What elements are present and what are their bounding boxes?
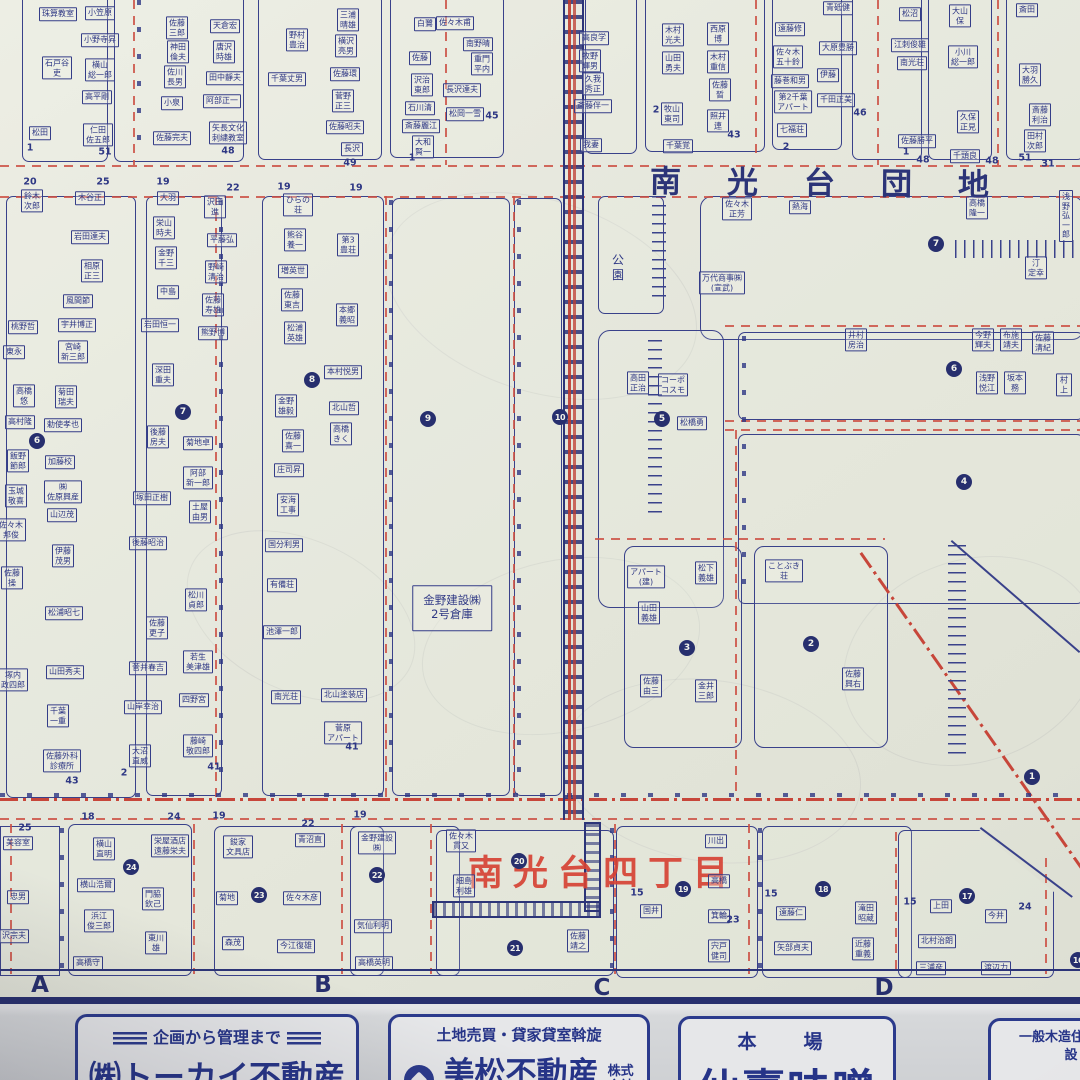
house-label: 西原 博 — [707, 22, 729, 45]
circled-block-number: 2 — [803, 636, 819, 652]
city-block-6 — [738, 332, 1080, 420]
pole-dots — [0, 793, 1080, 797]
house-label: 東永 — [3, 345, 25, 359]
house-label: 南光荘 — [897, 56, 927, 70]
street-line — [513, 196, 515, 798]
house-label: 佐藤 靖之 — [567, 929, 589, 952]
house-label: 有備荘 — [267, 578, 297, 592]
house-label: 松橋勇 — [677, 416, 707, 430]
house-label: 藤崎 敬四郎 — [183, 734, 213, 757]
house-label: 川出 — [705, 834, 727, 848]
house-label: アパート (建) — [627, 565, 665, 588]
city-block-10 — [514, 198, 562, 796]
grid-letter: B — [314, 972, 332, 998]
house-label: 野村 豊治 — [286, 28, 308, 51]
circled-block-number: 18 — [815, 881, 831, 897]
house-label: 忠男 — [7, 890, 29, 904]
lot-number: 31 — [1041, 159, 1054, 170]
house-label: 伊藤 茂男 — [52, 544, 74, 567]
house-label: 木村 重信 — [707, 50, 729, 73]
circled-block-number: 10 — [552, 409, 568, 425]
house-label: 南光荘 — [271, 690, 301, 704]
circled-block-number: 9 — [420, 411, 436, 427]
house-label: 汀 定幸 — [1025, 256, 1047, 279]
house-label: 北村治朗 — [918, 934, 956, 948]
house-label: 斎田 — [1016, 3, 1038, 17]
house-label: 木村 光夫 — [662, 23, 684, 46]
house-label: 若生 美津雄 — [183, 650, 213, 673]
ad-tokai-fudosan: 企画から管理まで ㈱トーカイ不動産 — [75, 1014, 359, 1080]
house-label: 佐藤 東吉 — [281, 288, 303, 311]
house-label: 照井 連 — [707, 109, 729, 132]
house-label: 大羽 — [157, 191, 179, 205]
house-label: 勅使孝也 — [44, 418, 82, 432]
house-label: 佐藤 更子 — [146, 616, 168, 639]
house-label: 佐々木 邦俊 — [0, 518, 26, 541]
house-label: 増英世 — [278, 264, 308, 278]
house-label: 斎藤麗江 — [402, 119, 440, 133]
house-label: 後藤 房夫 — [147, 425, 169, 448]
house-label: 高田 正治 — [627, 371, 649, 394]
circled-block-number: 8 — [304, 372, 320, 388]
house-label: 沢宗夫 — [0, 929, 29, 943]
house-label: 鋑家 文具店 — [223, 835, 253, 858]
house-label: 井村 房治 — [845, 328, 867, 351]
house-label: 北山哲 — [329, 401, 359, 415]
circled-block-number: 19 — [675, 881, 691, 897]
bars-icon — [113, 1032, 147, 1046]
house-label: 今江復雄 — [277, 939, 315, 953]
street-line — [430, 824, 432, 974]
house-label: 遠藤仁 — [776, 906, 806, 920]
house-label: 小笠原 — [85, 6, 115, 20]
house-label: 門脇 欽己 — [142, 887, 164, 910]
house-label: 矢長文化 刺繍教室 — [209, 121, 247, 144]
house-label: 斎藤伴一 — [574, 99, 612, 113]
bars-icon — [287, 1032, 321, 1046]
house-label: 岩田恒一 — [141, 318, 179, 332]
lot-number: 48 — [985, 156, 998, 167]
house-label: 松下 義雄 — [695, 561, 717, 584]
house-label: 加藤校 — [45, 455, 75, 469]
house-label: 安海 工事 — [277, 493, 299, 516]
lot-number: 1 — [903, 147, 910, 158]
house-label: 佐藤完夫 — [153, 131, 191, 145]
house-label: 菅野 正三 — [332, 89, 354, 112]
pole-dots — [219, 200, 223, 792]
house-label: 宇井博正 — [58, 318, 96, 332]
house-label: 渡辺力 — [981, 961, 1011, 975]
house-label: 菊田 瑞夫 — [55, 385, 77, 408]
street-line — [133, 0, 135, 165]
house-label: 菊地卓 — [183, 436, 213, 450]
circled-block-number: 3 — [679, 640, 695, 656]
house-label: 栄山 時夫 — [153, 216, 175, 239]
house-label: 佐藤 晳 — [709, 78, 731, 101]
house-label: 田村 次郎 — [1024, 129, 1046, 152]
house-label: 田中靜夫 — [206, 71, 244, 85]
city-block-18 — [762, 826, 912, 978]
house-label: 牧野 輝男 — [579, 49, 601, 72]
pole-dots — [60, 828, 64, 972]
lot-number: 49 — [343, 158, 356, 169]
house-label: 沢田 進 — [204, 195, 226, 218]
house-label: 矢部貞夫 — [774, 941, 812, 955]
house-label: 千葉覚 — [663, 139, 693, 153]
house-label: 高村隆 — [5, 415, 35, 429]
grid-letter: A — [31, 972, 49, 998]
hatch-strip — [652, 196, 666, 304]
house-label: 飯野 節郎 — [7, 449, 29, 472]
lot-number: 19 — [156, 177, 169, 188]
house-label: 布施 靖夫 — [1000, 328, 1022, 351]
house-label: 佐藤 — [409, 51, 431, 65]
street-line — [725, 325, 1080, 327]
house-label: 佐藤外科 診療所 — [43, 749, 81, 772]
circled-block-number: 6 — [29, 433, 45, 449]
lot-number: 19 — [277, 182, 290, 193]
house-label: 横山浩爾 — [77, 878, 115, 892]
hatch-strip — [955, 240, 1080, 258]
house-label: 青沼直 — [295, 833, 325, 847]
ad-mokuzo-jutaku: 一般木造住宅・建 設 — [988, 1018, 1080, 1080]
house-label: 佐藤昭夫 — [326, 120, 364, 134]
house-label: 我妻 — [580, 138, 602, 152]
house-label: 久我 秀正 — [582, 72, 604, 95]
house-label: 松沼 — [899, 7, 921, 21]
footpath-horizontal — [432, 901, 601, 918]
lot-number: 2 — [121, 768, 128, 779]
house-label: 佐々木 正芳 — [722, 197, 752, 220]
house-label: 岩田達夫 — [71, 230, 109, 244]
street-line — [193, 824, 195, 974]
house-label: 本村悦男 — [324, 365, 362, 379]
house-label: 青砥健 — [823, 1, 853, 15]
house-label: 金野 雄毅 — [275, 394, 297, 417]
street-line — [748, 824, 750, 974]
house-label: 阿部正一 — [203, 94, 241, 108]
lot-number: 41 — [345, 742, 358, 753]
house-label: 佐々木彦 — [283, 891, 321, 905]
house-label: 高橋 悠 — [13, 384, 35, 407]
house-label: 坂本 務 — [1004, 371, 1026, 394]
house-label: 南野晴 — [463, 37, 493, 51]
house-label: 大沼 直威 — [129, 744, 151, 767]
house-label: 木谷正 — [75, 191, 105, 205]
house-label: 長沢達夫 — [443, 83, 481, 97]
hatch-strip — [948, 545, 966, 760]
lot-number: 25 — [18, 823, 31, 834]
house-label: 庄司昇 — [274, 463, 304, 477]
lot-number: 45 — [485, 111, 498, 122]
lot-number: 43 — [727, 130, 740, 141]
ad-mimatsu-suffix: 株式 会社 — [608, 1065, 634, 1080]
lot-number: 43 — [65, 776, 78, 787]
house-label: 仁田 佐五郎 — [83, 123, 113, 146]
ad-mokuzo-line: 一般木造住宅・建 設 — [991, 1029, 1080, 1064]
lot-number: 15 — [630, 888, 643, 899]
house-label: 高橋 隆一 — [966, 196, 988, 219]
house-label: 阿部 新一郎 — [183, 466, 213, 489]
house-label: 玉城 敬喜 — [5, 484, 27, 507]
house-label: 熱海 — [789, 200, 811, 214]
street-line — [895, 832, 897, 974]
house-label: 石川清 — [405, 101, 435, 115]
lot-number: 41 — [207, 762, 220, 773]
house-label: 山辺茂 — [47, 508, 77, 522]
house-label: 近藤 重義 — [852, 937, 874, 960]
lot-number: 24 — [167, 812, 180, 823]
lot-number: 48 — [916, 155, 929, 166]
house-label: 金井 三郎 — [695, 679, 717, 702]
lot-number: 25 — [96, 177, 109, 188]
house-label: 金野 千三 — [155, 246, 177, 269]
lot-number: 19 — [353, 810, 366, 821]
ad-tokai-tagline: 企画から管理まで — [153, 1028, 281, 1047]
house-label: 珠算教室 — [39, 7, 77, 21]
house-label: 重門 平内 — [471, 52, 493, 75]
house-label: 桃野哲 — [8, 320, 38, 334]
house-label: 鈴木 次郎 — [21, 189, 43, 212]
house-label: 後藤昭治 — [129, 536, 167, 550]
house-label: 土屋 由男 — [189, 500, 211, 523]
lot-number: 20 — [23, 177, 36, 188]
street-line — [595, 538, 885, 540]
main-road — [563, 0, 584, 820]
lot-number: 18 — [81, 812, 94, 823]
house-label: 遠藤修 — [775, 22, 805, 36]
lot-number: 2 — [653, 105, 660, 116]
house-label: 山岸幸治 — [124, 700, 162, 714]
house-label: 横山 総一郎 — [85, 58, 115, 81]
warehouse-label: 金野建設㈱ 2号倉庫 — [412, 585, 492, 631]
house-label: 山田秀夫 — [46, 665, 84, 679]
house-label: 池澤一郎 — [263, 625, 301, 639]
ad-miso-top: 本 場 — [681, 1027, 893, 1054]
house-label: 菅井春吉 — [129, 661, 167, 675]
house-label: 藤巻和男 — [771, 74, 809, 88]
house-label: 佐藤 三郎 — [166, 16, 188, 39]
house-label: 千葉丈男 — [268, 72, 306, 86]
street-line — [725, 429, 1080, 431]
lot-number: 19 — [212, 811, 225, 822]
circled-block-number: 24 — [123, 859, 139, 875]
house-label: 菊地 — [216, 891, 238, 905]
circled-block-number: 5 — [654, 411, 670, 427]
house-label: 上田 — [930, 899, 952, 913]
house-label: 野崎 清治 — [205, 260, 227, 283]
pole-dots — [137, 0, 141, 162]
chome-label-red: 南光台四丁目 — [468, 845, 738, 896]
house-label: 熊谷 養一 — [284, 228, 306, 251]
house-label: 高平剛 — [82, 90, 112, 104]
circled-block-number: 1 — [1024, 769, 1040, 785]
house-label: 熊野博 — [198, 326, 228, 340]
house-label: 沢治 東郎 — [411, 73, 433, 96]
ad-mimatsu-fudosan: 土地売買・貸家貸室斡旋 美松不動産 株式 会社 — [388, 1014, 650, 1080]
house-label: 高橋守 — [73, 956, 103, 970]
ad-tokai-name: ㈱トーカイ不動産 — [78, 1052, 356, 1080]
house-label: 小泉 — [161, 96, 183, 110]
house-label: 大羽 勝久 — [1019, 63, 1041, 86]
street-line — [755, 0, 757, 160]
house-label: 浅野 悦江 — [976, 371, 998, 394]
advertisement-strip: 企画から管理まで ㈱トーカイ不動産 土地売買・貸家貸室斡旋 美松不動産 株式 会… — [0, 1004, 1080, 1080]
circled-block-number: 22 — [369, 867, 385, 883]
house-label: 北山塗装店 — [321, 688, 367, 702]
house-label: 佐藤 操 — [1, 566, 23, 589]
pole-dots — [742, 336, 746, 596]
house-label: 今井 — [985, 909, 1007, 923]
lot-number: 15 — [764, 889, 777, 900]
house-label: 千田正美 — [817, 93, 855, 107]
street-line — [215, 196, 217, 798]
house-label: 高良学 — [579, 31, 609, 45]
lot-number: 1 — [409, 153, 416, 164]
circled-block-number: 20 — [511, 853, 527, 869]
park-label: 公 園 — [612, 253, 624, 283]
house-label: 高橋 きく — [330, 422, 352, 445]
lot-number: 22 — [301, 819, 314, 830]
house-label: 佐藤環 — [330, 67, 360, 81]
house-label: 唐沢 時雄 — [213, 40, 235, 63]
house-label: 久保 正見 — [957, 110, 979, 133]
house-label: 塚内 政四郎 — [0, 668, 28, 691]
house-label: 佐藤 喜一 — [282, 429, 304, 452]
lot-number: 51 — [98, 147, 111, 158]
house-label: 長沢 — [341, 142, 363, 156]
house-label: 神田 倫夫 — [167, 40, 189, 63]
house-label: 松田 — [29, 126, 51, 140]
house-label: 風間節 — [63, 294, 93, 308]
house-label: 宮崎 新三郎 — [58, 340, 88, 363]
house-label: 佐藤 由三 — [640, 674, 662, 697]
house-label: 第2千葉 アパート — [774, 90, 812, 113]
house-label: 横沢 亮男 — [335, 34, 357, 57]
street-line — [725, 420, 1080, 422]
city-block-7 — [700, 196, 1080, 340]
house-label: 佐々木 貫又 — [446, 829, 476, 852]
street-line — [0, 818, 1080, 820]
house-label: 伊藤 — [817, 68, 839, 82]
house-label: 第3 豊荘 — [337, 233, 359, 256]
house-label: 石戸谷 吏 — [42, 56, 72, 79]
house-label: 松川 貞郎 — [185, 588, 207, 611]
house-label: 江刺俊雄 — [891, 38, 929, 52]
map-frame-line — [0, 997, 1080, 1004]
house-label: 浅野 弘一郎 — [1059, 190, 1073, 242]
lot-number: 48 — [221, 146, 234, 157]
hatch-strip — [648, 340, 662, 520]
house-label: 白鷺 — [414, 17, 436, 31]
ad-miso-name: 仙臺味噌 — [681, 1056, 893, 1080]
house-label: 高橋英明 — [355, 956, 393, 970]
house-label: 塚田正樹 — [133, 491, 171, 505]
house-label: 四野宮 — [179, 693, 209, 707]
circled-block-number: 6 — [946, 361, 962, 377]
house-label: 平藤弘 — [207, 233, 237, 247]
house-label: 千葉 一重 — [47, 704, 69, 727]
circled-block-number: 4 — [956, 474, 972, 490]
map-frame-line — [0, 969, 1080, 971]
house-label: 三浦彦 — [916, 961, 946, 975]
pole-dots — [389, 200, 393, 792]
house-label: ことぶき 荘 — [765, 559, 803, 582]
pole-dots — [758, 828, 762, 972]
house-label: 宍戸 健司 — [708, 939, 730, 962]
house-label: 栄屋酒店 遠藤栄夫 — [151, 834, 189, 857]
lot-number: 2 — [783, 142, 790, 153]
city-block-9 — [392, 198, 510, 796]
lot-number: 22 — [226, 183, 239, 194]
house-label: 気仙利明 — [354, 919, 392, 933]
pole-dots — [517, 200, 521, 792]
house-label: 小川 総一郎 — [948, 45, 978, 68]
house-label: 佐川 長男 — [164, 65, 186, 88]
house-label: 中島 — [157, 285, 179, 299]
ad-sendai-miso: 本 場 仙臺味噌 — [678, 1016, 896, 1080]
house-label: 国分利男 — [265, 538, 303, 552]
house-label: 浜江 俊三郎 — [84, 909, 114, 932]
lot-number: 46 — [853, 108, 866, 119]
main-street-line — [0, 798, 1080, 801]
circled-block-number: 23 — [251, 887, 267, 903]
house-label: 山田 義雄 — [638, 601, 660, 624]
house-label: 村上 — [1056, 373, 1072, 396]
house-label: 高橋 — [708, 874, 730, 888]
house-label: コーポ コスモ — [658, 373, 688, 396]
house-label: 山田 勇夫 — [662, 51, 684, 74]
house-label: 滝田 昭蔵 — [855, 901, 877, 924]
house-label: 佐藤 興右 — [842, 667, 864, 690]
house-label: 七福荘 — [777, 123, 807, 137]
circled-block-number: 7 — [928, 236, 944, 252]
circled-block-number: 7 — [175, 404, 191, 420]
house-label: 松浦昭七 — [45, 606, 83, 620]
house-label: 万代商事㈱ (宣武) — [699, 271, 745, 294]
house-label: 横山 直明 — [93, 837, 115, 860]
lot-number: 1 — [27, 143, 34, 154]
lot-number: 23 — [726, 915, 739, 926]
street-line — [877, 0, 879, 165]
house-label: 三浦 晴雄 — [337, 8, 359, 31]
house-label: 深田 重夫 — [152, 363, 174, 386]
house-label: 細島 利雄 — [453, 874, 475, 897]
house-label: 東川 雄 — [145, 931, 167, 954]
ad-mimatsu-tagline: 土地売買・貸家貸室斡旋 — [391, 1024, 647, 1045]
house-label: 本郷 義昭 — [336, 303, 358, 326]
house-label: 金野建設 ㈱ — [358, 831, 396, 854]
lot-number: 19 — [349, 183, 362, 194]
street-line — [997, 0, 999, 165]
house-label: 大原豊勝 — [819, 41, 857, 55]
lot-number: 51 — [1018, 153, 1031, 164]
house-label: 小野寺昇 — [81, 33, 119, 47]
house-label: 佐藤 寿雄 — [202, 293, 224, 316]
circled-block-number: 21 — [507, 940, 523, 956]
house-label: 森茂 — [222, 936, 244, 950]
house-label: 今野 輝夫 — [972, 328, 994, 351]
house-label: 松浦 英雄 — [284, 321, 306, 344]
house-label: 斎藤 利治 — [1029, 103, 1051, 126]
house-label: 佐々木 五十鈴 — [773, 45, 803, 68]
house-label: 美容室 — [3, 836, 33, 850]
circled-block-number: 17 — [959, 888, 975, 904]
circled-block-number: 16 — [1070, 952, 1080, 968]
street-line — [735, 430, 737, 798]
house-label: 天倉宏 — [210, 19, 240, 33]
house-label: 相原 正三 — [81, 259, 103, 282]
